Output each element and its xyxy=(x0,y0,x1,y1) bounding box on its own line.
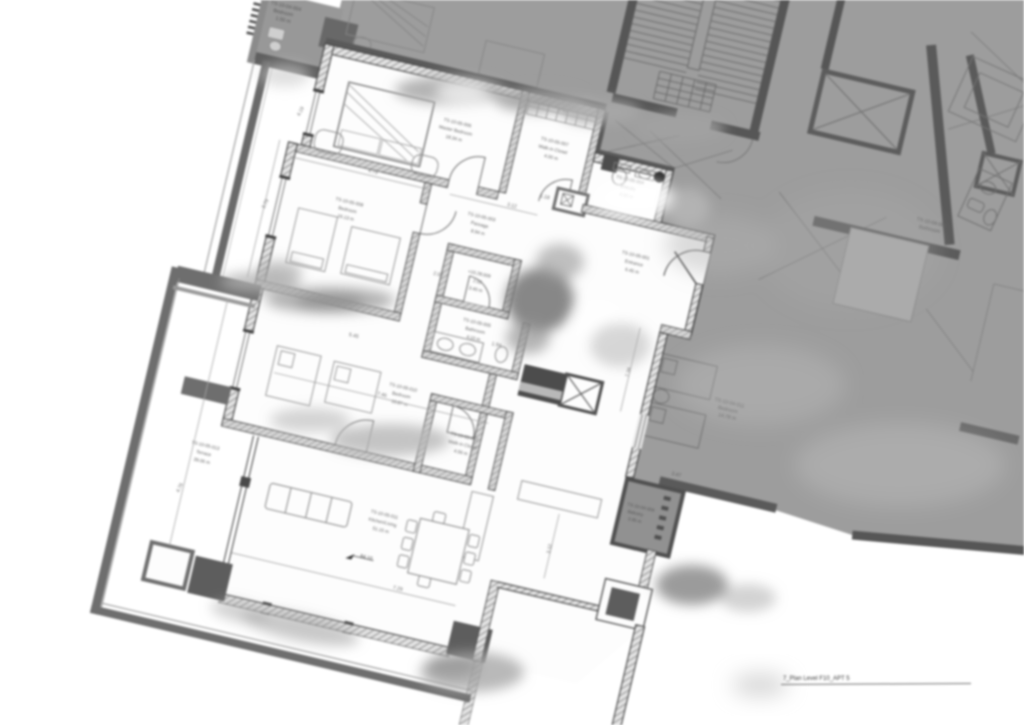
svg-text:7_Plan Level F10_APT 5: 7_Plan Level F10_APT 5 xyxy=(783,676,850,682)
